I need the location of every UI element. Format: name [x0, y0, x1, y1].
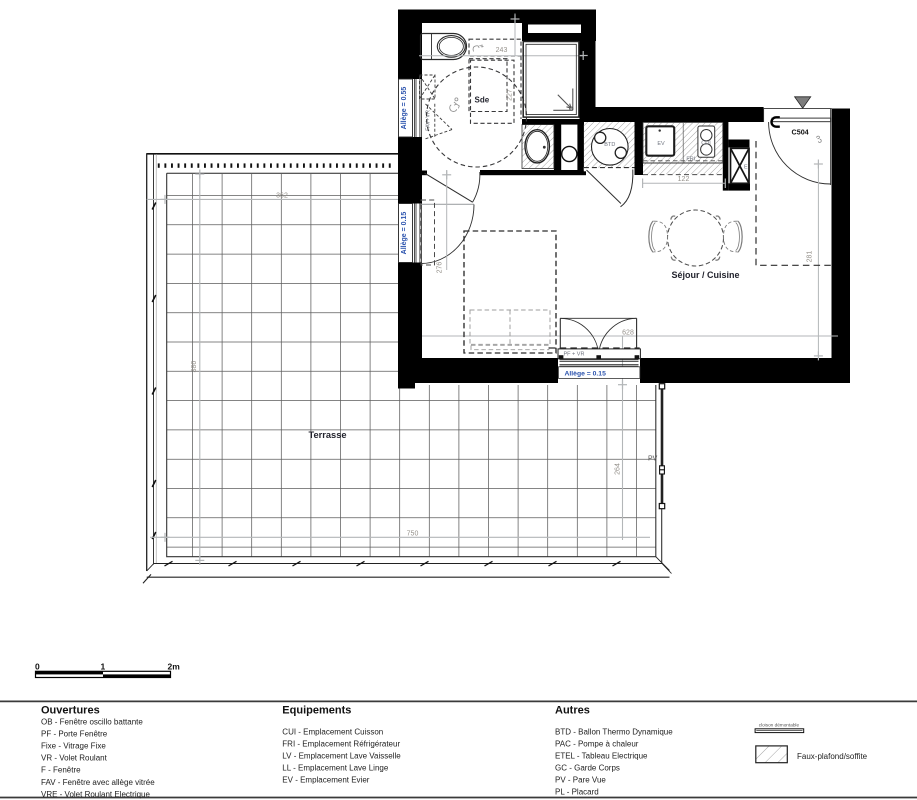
- svg-text:Ouvertures: Ouvertures: [41, 705, 100, 717]
- svg-text:281: 281: [807, 251, 814, 263]
- svg-text:VRE - Volet Roulant Electrique: VRE - Volet Roulant Electrique: [41, 790, 150, 799]
- svg-text:Allège = 0.15: Allège = 0.15: [401, 212, 408, 255]
- svg-text:264: 264: [615, 463, 622, 475]
- svg-text:PV - Pare Vue: PV - Pare Vue: [555, 776, 606, 785]
- svg-text:BTD - Ballon Thermo Dynamique: BTD - Ballon Thermo Dynamique: [555, 727, 673, 736]
- svg-text:Autres: Autres: [555, 705, 590, 717]
- svg-text:PF + VR: PF + VR: [564, 352, 585, 358]
- svg-text:PL - Placard: PL - Placard: [555, 788, 599, 797]
- svg-text:FRI - Emplacement Réfrigérateu: FRI - Emplacement Réfrigérateur: [282, 739, 400, 748]
- svg-text:EV: EV: [657, 141, 665, 147]
- svg-text:C504: C504: [792, 128, 809, 137]
- svg-text:Allège = 0.55: Allège = 0.55: [401, 87, 408, 130]
- svg-text:FAV - Fenêtre avec allège vitr: FAV - Fenêtre avec allège vitrée: [41, 778, 155, 787]
- svg-text:Allège = 0.15: Allège = 0.15: [565, 371, 607, 378]
- svg-text:362: 362: [276, 192, 288, 199]
- svg-text:CUI - Emplacement Cuisson: CUI - Emplacement Cuisson: [282, 727, 383, 736]
- svg-text:Sde: Sde: [475, 95, 490, 104]
- svg-text:PAC - Pompe à chaleur: PAC - Pompe à chaleur: [555, 739, 639, 748]
- svg-text:LL - Emplacement Lave Linge: LL - Emplacement Lave Linge: [282, 763, 389, 772]
- svg-text:Terrasse: Terrasse: [308, 430, 346, 440]
- svg-text:243: 243: [496, 47, 508, 54]
- svg-text:PV: PV: [648, 456, 658, 463]
- svg-text:OB - Fenêtre oscillo battante: OB - Fenêtre oscillo battante: [41, 718, 143, 727]
- svg-text:122: 122: [678, 176, 690, 183]
- svg-text:227: 227: [507, 89, 514, 101]
- svg-text:F - Fenêtre: F - Fenêtre: [41, 766, 81, 775]
- svg-text:276: 276: [436, 262, 443, 274]
- svg-text:EV - Emplacement Evier: EV - Emplacement Evier: [282, 776, 369, 785]
- svg-text:Fixe - Vitrage Fixe: Fixe - Vitrage Fixe: [41, 742, 106, 751]
- svg-text:Equipements: Equipements: [282, 705, 351, 717]
- svg-text:750: 750: [407, 530, 419, 537]
- svg-text:386: 386: [191, 361, 198, 373]
- svg-text:cloison démontable: cloison démontable: [759, 722, 800, 727]
- svg-text:1: 1: [101, 662, 106, 672]
- svg-text:CUI: CUI: [701, 141, 711, 147]
- svg-text:GC - Garde Corps: GC - Garde Corps: [555, 763, 620, 772]
- svg-text:Séjour / Cuisine: Séjour / Cuisine: [671, 270, 739, 280]
- svg-text:LV - Emplacement Lave Vaissell: LV - Emplacement Lave Vaisselle: [282, 751, 401, 760]
- svg-text:BTD: BTD: [604, 142, 615, 148]
- svg-text:VR - Volet Roulant: VR - Volet Roulant: [41, 754, 108, 763]
- svg-text:0: 0: [35, 662, 40, 672]
- svg-text:ETEL - Tableau Electrique: ETEL - Tableau Electrique: [555, 751, 648, 760]
- svg-text:2m: 2m: [168, 662, 181, 672]
- svg-text:E: E: [744, 165, 748, 171]
- svg-text:FRI: FRI: [686, 156, 695, 162]
- svg-text:628: 628: [622, 329, 634, 336]
- svg-text:PF - Porte Fenêtre: PF - Porte Fenêtre: [41, 730, 108, 739]
- svg-text:Faux-plafond/soffite: Faux-plafond/soffite: [797, 752, 868, 761]
